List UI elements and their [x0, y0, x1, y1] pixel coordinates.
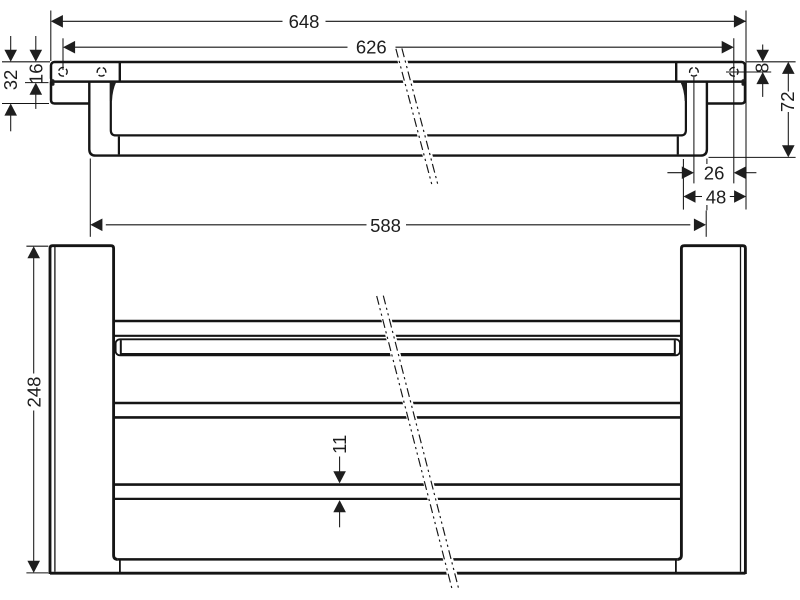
- svg-text:72: 72: [777, 92, 798, 113]
- svg-text:26: 26: [704, 163, 725, 184]
- svg-text:48: 48: [706, 186, 727, 207]
- svg-text:648: 648: [289, 11, 320, 32]
- svg-text:11: 11: [329, 435, 350, 454]
- svg-text:626: 626: [356, 37, 387, 58]
- svg-text:32: 32: [0, 70, 21, 91]
- svg-text:8: 8: [752, 63, 773, 73]
- svg-text:588: 588: [370, 215, 401, 236]
- svg-text:16: 16: [25, 64, 46, 85]
- svg-text:248: 248: [23, 377, 44, 408]
